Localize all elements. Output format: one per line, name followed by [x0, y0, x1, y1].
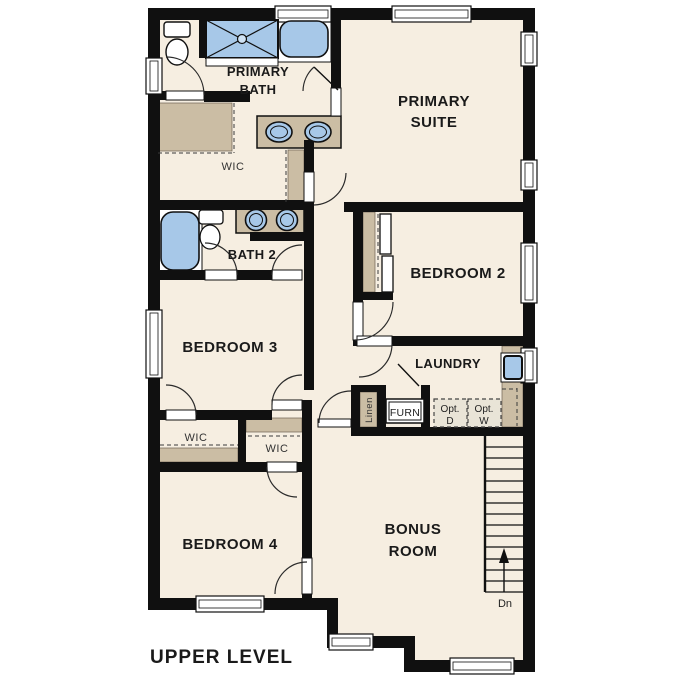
- window: [521, 243, 537, 303]
- laundry-label: LAUNDRY: [415, 356, 481, 371]
- wall-bath2-south-b: [237, 270, 272, 280]
- doorway-wic4: [267, 462, 297, 472]
- bedroom2-label: BEDROOM 2: [410, 265, 505, 282]
- doorway-bath2-right: [272, 270, 302, 280]
- stairs-dn-label: Dn: [498, 598, 512, 610]
- wall-hall-west: [304, 202, 314, 390]
- wall-spine-low-b: [302, 594, 312, 610]
- svg-text:SUITE: SUITE: [411, 114, 458, 131]
- window: [521, 32, 537, 66]
- bedroom3-label: BEDROOM 3: [182, 339, 277, 356]
- window: [146, 310, 162, 378]
- wall-bonus-north: [351, 427, 535, 436]
- doorway-bedroom4: [302, 558, 312, 594]
- doorway-suite-bath: [331, 88, 341, 116]
- wall-laundry-north-b: [392, 336, 525, 346]
- wall-suite-west: [331, 8, 341, 88]
- window: [146, 58, 162, 94]
- laundry-sink-fixture: [501, 353, 525, 382]
- wall-bedroom2-closet-south: [353, 292, 393, 300]
- wall-wic-east-upper: [304, 140, 314, 172]
- doorway-wic3: [166, 410, 196, 420]
- wall-spine-low: [302, 400, 312, 558]
- wic4-label: WIC: [266, 443, 289, 455]
- linen-label: Linen: [364, 397, 375, 423]
- sink-fixture: [305, 122, 331, 142]
- closet-bypass-doors: [380, 214, 393, 292]
- wic3-shelf: [158, 448, 238, 462]
- wall-bath2-south-a: [148, 270, 205, 280]
- wall-bath2-vanity: [250, 232, 306, 241]
- primary-wic-shelves: [158, 103, 232, 151]
- wall-bedroom2-west: [353, 212, 363, 302]
- window: [392, 6, 471, 22]
- wic4-shelf: [246, 418, 302, 432]
- bathtub2-fixture: [161, 212, 199, 270]
- doorway-hall-bonus: [318, 419, 351, 427]
- wall-exterior-top: [148, 8, 535, 20]
- bedroom4-label: BEDROOM 4: [182, 536, 278, 553]
- doorway-wic-suite: [304, 172, 314, 202]
- window: [521, 160, 537, 190]
- svg-text:W: W: [479, 416, 489, 427]
- page-title: UPPER LEVEL: [150, 647, 293, 668]
- primary-wic-label: WIC: [222, 161, 245, 173]
- window: [329, 634, 373, 650]
- svg-text:Opt.: Opt.: [475, 404, 494, 415]
- sink-fixture: [277, 210, 298, 231]
- doorway-toilet-room: [166, 91, 204, 100]
- wall-bedroom4-north-a: [148, 462, 267, 472]
- bath2-label: BATH 2: [228, 247, 276, 262]
- doorway-bedroom3: [272, 400, 302, 410]
- wall-bedroom2-north: [344, 202, 525, 212]
- window: [450, 658, 514, 674]
- window: [275, 6, 331, 22]
- bedroom2-closet-shelf: [363, 212, 375, 292]
- primary-wic-shelf-east: [288, 150, 304, 202]
- window: [196, 596, 264, 612]
- svg-text:PRIMARY: PRIMARY: [398, 93, 470, 110]
- doorway-bath2-left: [205, 270, 237, 280]
- bathtub-fixture: [280, 21, 328, 57]
- svg-text:D: D: [446, 416, 453, 427]
- wall-toilet-shower: [199, 20, 206, 58]
- svg-text:BATH: BATH: [240, 82, 277, 97]
- furnace-label: FURN: [390, 407, 420, 419]
- doorway-laundry: [357, 336, 392, 346]
- wall-wic-south: [148, 200, 314, 210]
- svg-text:Opt.: Opt.: [441, 404, 460, 415]
- floor-plan: PRIMARY BATH PRIMARY SUITE WIC BATH 2 BE…: [0, 0, 687, 687]
- svg-text:BONUS: BONUS: [385, 521, 442, 538]
- wall-bedroom4-north-b: [297, 462, 312, 472]
- wall-linen-north: [351, 385, 380, 392]
- wic3-label: WIC: [185, 432, 208, 444]
- shower-fixture: [206, 20, 278, 66]
- doorway-bedroom2: [353, 302, 363, 340]
- svg-text:ROOM: ROOM: [389, 543, 438, 560]
- sink-fixture: [246, 210, 267, 231]
- sink-fixture: [266, 122, 292, 142]
- svg-text:PRIMARY: PRIMARY: [227, 64, 289, 79]
